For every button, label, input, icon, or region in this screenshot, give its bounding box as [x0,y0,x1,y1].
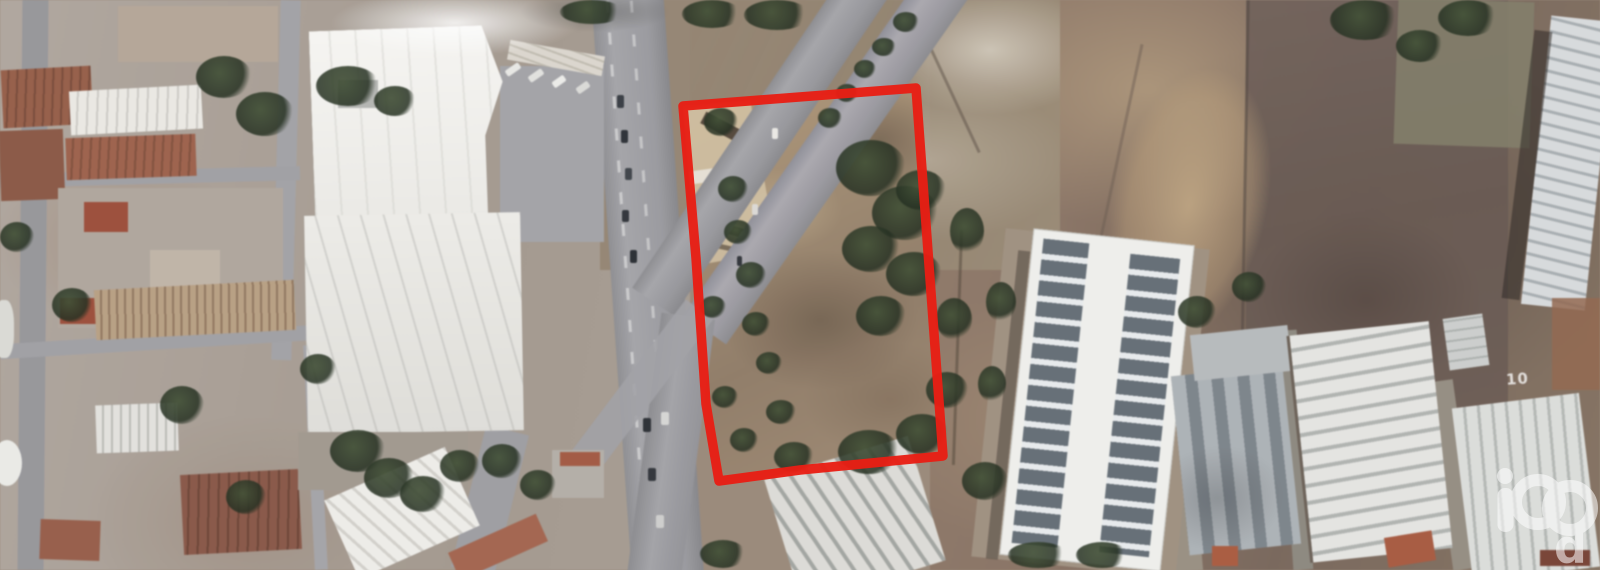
satellite-image: 10 d [0,0,1600,570]
boundary-overlay [0,0,1600,570]
watermark-iad-logo: d [1494,464,1600,570]
watermark-letter-d: d [1554,520,1587,570]
watermark-i-dot [1497,468,1513,484]
property-boundary [683,88,943,481]
